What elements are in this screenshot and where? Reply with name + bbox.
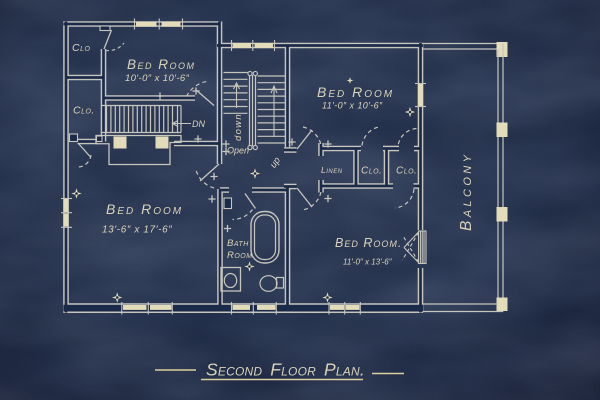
svg-text:Clo.: Clo. (73, 105, 95, 117)
svg-text:Bed Room: Bed Room (106, 201, 183, 217)
svg-text:13′-6″ x 17′-6″: 13′-6″ x 17′-6″ (102, 225, 172, 236)
svg-text:10′-0″ x 10′-6″: 10′-0″ x 10′-6″ (125, 73, 190, 84)
svg-text:Bed Room: Bed Room (127, 57, 196, 72)
svg-text:11′-0″ x 10′-6″: 11′-0″ x 10′-6″ (322, 101, 383, 111)
svg-text:down: down (233, 113, 244, 141)
svg-text:Clo.: Clo. (396, 166, 417, 177)
svg-text:Second Floor Plan.: Second Floor Plan. (206, 360, 365, 380)
svg-text:Bed Room: Bed Room (317, 84, 394, 100)
svg-text:11′-0″ x 13′-6″: 11′-0″ x 13′-6″ (343, 258, 393, 267)
svg-text:Clo: Clo (72, 42, 90, 54)
svg-text:Bath: Bath (227, 238, 249, 249)
svg-text:Linen: Linen (321, 165, 343, 175)
svg-text:Bed Room.: Bed Room. (335, 236, 402, 250)
svg-text:Open: Open (227, 146, 249, 156)
svg-text:Clo.: Clo. (361, 166, 382, 177)
svg-text:Balcony: Balcony (458, 152, 475, 231)
svg-text:Room: Room (227, 250, 253, 261)
svg-text:DN: DN (192, 119, 205, 129)
